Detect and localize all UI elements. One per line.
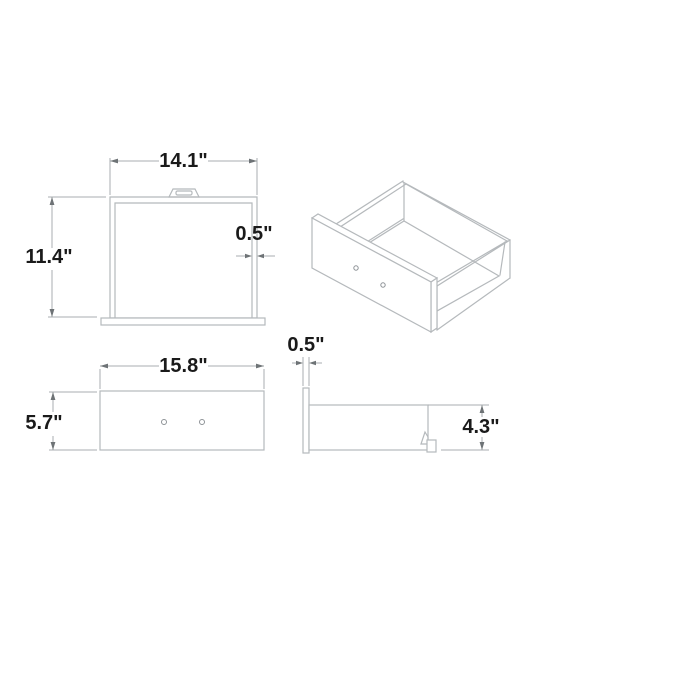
- arrow-down-icon: [50, 309, 55, 317]
- arrow-down-icon: [480, 442, 485, 450]
- arrow-right-icon: [249, 159, 257, 164]
- arrow-up-icon: [51, 392, 56, 400]
- arrow-up-icon: [50, 197, 55, 205]
- iso-front-panel-side: [431, 278, 437, 332]
- arrow-right-icon: [245, 254, 252, 258]
- side-slide-bracket: [427, 440, 436, 452]
- side-view: 0.5" 4.3": [287, 334, 499, 453]
- front-handle-hole: [162, 420, 167, 425]
- top-view-thickness-label: 0.5": [235, 223, 272, 245]
- side-front-panel: [303, 388, 309, 453]
- front-view-height-label: 5.7": [25, 412, 62, 434]
- front-handle-hole: [200, 420, 205, 425]
- top-view: 14.1" 11.4" 0.5": [25, 150, 275, 325]
- arrow-left-icon: [309, 361, 316, 365]
- arrow-left-icon: [110, 159, 118, 164]
- top-view-depth-label: 11.4": [25, 246, 72, 268]
- arrow-left-icon: [257, 254, 264, 258]
- top-view-walls: [110, 197, 257, 318]
- front-view: 15.8" 5.7": [25, 355, 264, 450]
- side-view-thickness-label: 0.5": [287, 334, 324, 356]
- top-view-front-panel-edge: [101, 318, 265, 325]
- top-view-width-label: 14.1": [159, 150, 207, 172]
- front-view-width-label: 15.8": [159, 355, 207, 377]
- technical-drawing: 14.1" 11.4" 0.5" 15.8" 5.7": [0, 0, 700, 700]
- arrow-down-icon: [51, 442, 56, 450]
- isometric-view: [312, 181, 510, 332]
- front-panel-outline: [100, 391, 264, 450]
- iso-handle-hole: [381, 283, 385, 287]
- top-view-back-clip: [169, 189, 199, 197]
- side-drawer-body: [309, 405, 428, 450]
- iso-handle-hole: [354, 266, 358, 270]
- side-view-height-label: 4.3": [462, 416, 499, 438]
- arrow-right-icon: [256, 364, 264, 369]
- top-view-back-clip-slot: [176, 191, 192, 195]
- arrow-up-icon: [480, 405, 485, 413]
- arrow-right-icon: [296, 361, 303, 365]
- arrow-left-icon: [100, 364, 108, 369]
